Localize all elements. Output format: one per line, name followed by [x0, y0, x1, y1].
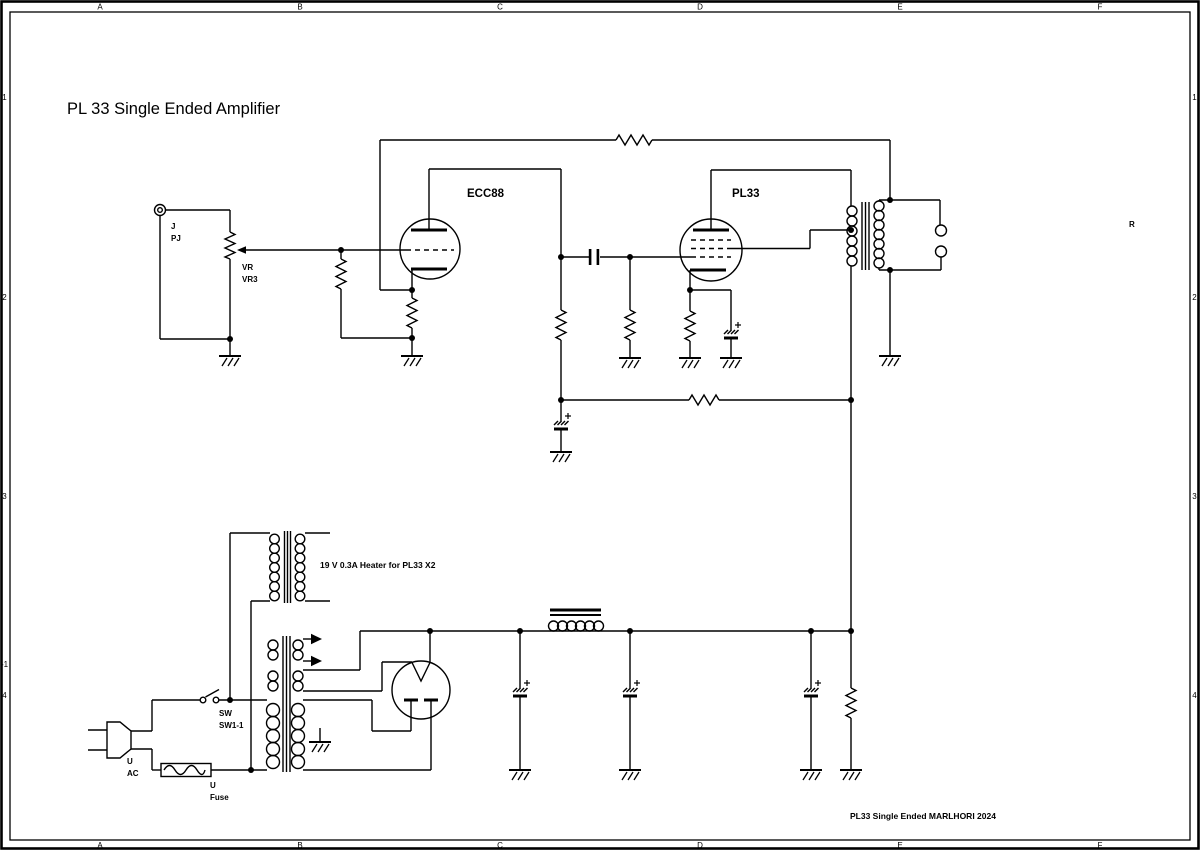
b-plus-rail [360, 610, 862, 780]
nfb-network [380, 135, 890, 290]
bleeder-resistor [840, 631, 862, 780]
grid-number: 1 [1192, 93, 1197, 102]
rectifier-tube [392, 631, 450, 770]
ecc88-stage: ECC88 [336, 169, 561, 366]
ground-symbol [800, 770, 822, 780]
ground-symbol [879, 356, 901, 366]
grid-letter: C [497, 841, 503, 850]
grid-letter: F [1098, 841, 1103, 850]
grid-letter: D [697, 841, 703, 850]
grid-number: 4 [2, 691, 7, 700]
grid-number: 1 [2, 93, 7, 102]
tube-v1-label: ECC88 [467, 188, 505, 200]
cathode-bypass-cap [724, 322, 741, 340]
power-switch: SW SW1-1 [200, 690, 244, 731]
grid-letter: A [97, 3, 103, 12]
footer-note: PL33 Single Ended MARLHORI 2024 [850, 811, 996, 821]
heater-note-label: 19 V 0.3A Heater for PL33 X2 [320, 560, 436, 570]
plug-body [107, 722, 131, 758]
heater-transformer: 19 V 0.3A Heater for PL33 X2 [230, 531, 436, 770]
ground-symbol [619, 770, 641, 780]
pot-name-label: VR3 [242, 275, 258, 284]
grid-number: 3 [1192, 492, 1197, 501]
ul-tap-dot [848, 227, 854, 233]
rectifier-envelope [392, 661, 450, 719]
ground-symbol [309, 742, 331, 752]
grid-number: 4 [1192, 691, 1197, 700]
schematic-canvas: A B C D E F A B C D E F 1 2 3 4 -1 1 2 3… [0, 0, 1200, 850]
dropping-resistor [689, 395, 719, 405]
fuse-ref-label: U [210, 781, 216, 790]
mains-plug: U AC [88, 700, 200, 778]
ground-symbol [401, 356, 423, 366]
ground-symbol [509, 770, 531, 780]
page-title: PL 33 Single Ended Amplifier [67, 100, 281, 118]
margin-note-r: R [1129, 220, 1135, 229]
grid-letter: B [297, 841, 302, 850]
mains-ref-label: U [127, 757, 133, 766]
coupling-network [550, 249, 854, 462]
grid-letter: A [97, 841, 103, 850]
mains-name-label: AC [127, 769, 139, 778]
filter-cap-3 [800, 631, 822, 780]
cathode-resistor-v1 [407, 298, 417, 328]
grid-letter: D [697, 3, 703, 12]
grid-letter: E [897, 841, 902, 850]
grid-number: 2 [2, 293, 7, 302]
switch-ref-label: SW [219, 709, 232, 718]
ground-symbol [219, 356, 241, 366]
output-terminal [936, 225, 947, 236]
pot-ref-label: VR [242, 263, 253, 272]
input-jack: J PJ [155, 205, 231, 340]
drawing-frame: A B C D E F A B C D E F 1 2 3 4 -1 1 2 3… [1, 2, 1199, 850]
ground-symbol [679, 358, 701, 368]
choke [549, 610, 604, 631]
jack-ref-label: J [171, 222, 175, 231]
ground-symbol [619, 358, 641, 368]
mains-fuse: U Fuse [161, 764, 229, 803]
grid-letter: F [1098, 3, 1103, 12]
filter-cap-2 [619, 631, 641, 780]
grid-number: 2 [1192, 293, 1197, 302]
schematic-page: A B C D E F A B C D E F 1 2 3 4 -1 1 2 3… [0, 0, 1200, 850]
grid-number: 3 [2, 492, 7, 501]
volume-pot: VR VR3 [160, 210, 341, 366]
ground-symbol [840, 770, 862, 780]
heater-out-arrow [311, 656, 322, 666]
output-transformer [847, 140, 941, 631]
grid-resistor-v2 [625, 310, 635, 340]
grid-letter: E [897, 3, 902, 12]
tube-v2-label: PL33 [732, 188, 760, 200]
grid-letter: B [297, 3, 302, 12]
switch-lever [206, 690, 220, 698]
heater-out-arrow [311, 634, 322, 644]
decoupling-cap [554, 413, 571, 431]
cathode-resistor-v2 [685, 311, 695, 341]
ground-symbol [550, 452, 572, 462]
rectifier-filament [412, 663, 430, 682]
switch-name-label: SW1-1 [219, 721, 244, 730]
coupling-cap [589, 249, 592, 265]
filter-cap-1 [509, 631, 531, 780]
output-terminal [936, 246, 947, 257]
plate-load-resistor [556, 310, 566, 340]
nfb-resistor [616, 135, 652, 145]
fuse-name-label: Fuse [210, 793, 229, 802]
ground-symbol [720, 358, 742, 368]
jack-name-label: PJ [171, 234, 181, 243]
speaker-terminals [936, 200, 947, 270]
grid-letter: C [497, 3, 503, 12]
coupling-cap [597, 249, 600, 265]
grid-number-extra: -1 [1, 660, 9, 669]
grid-resistor-v1 [336, 259, 346, 289]
pot-wiper-arrow [237, 246, 246, 254]
fuse-element [164, 766, 205, 775]
pl33-stage: PL33 [679, 170, 851, 368]
power-transformer [211, 631, 431, 773]
